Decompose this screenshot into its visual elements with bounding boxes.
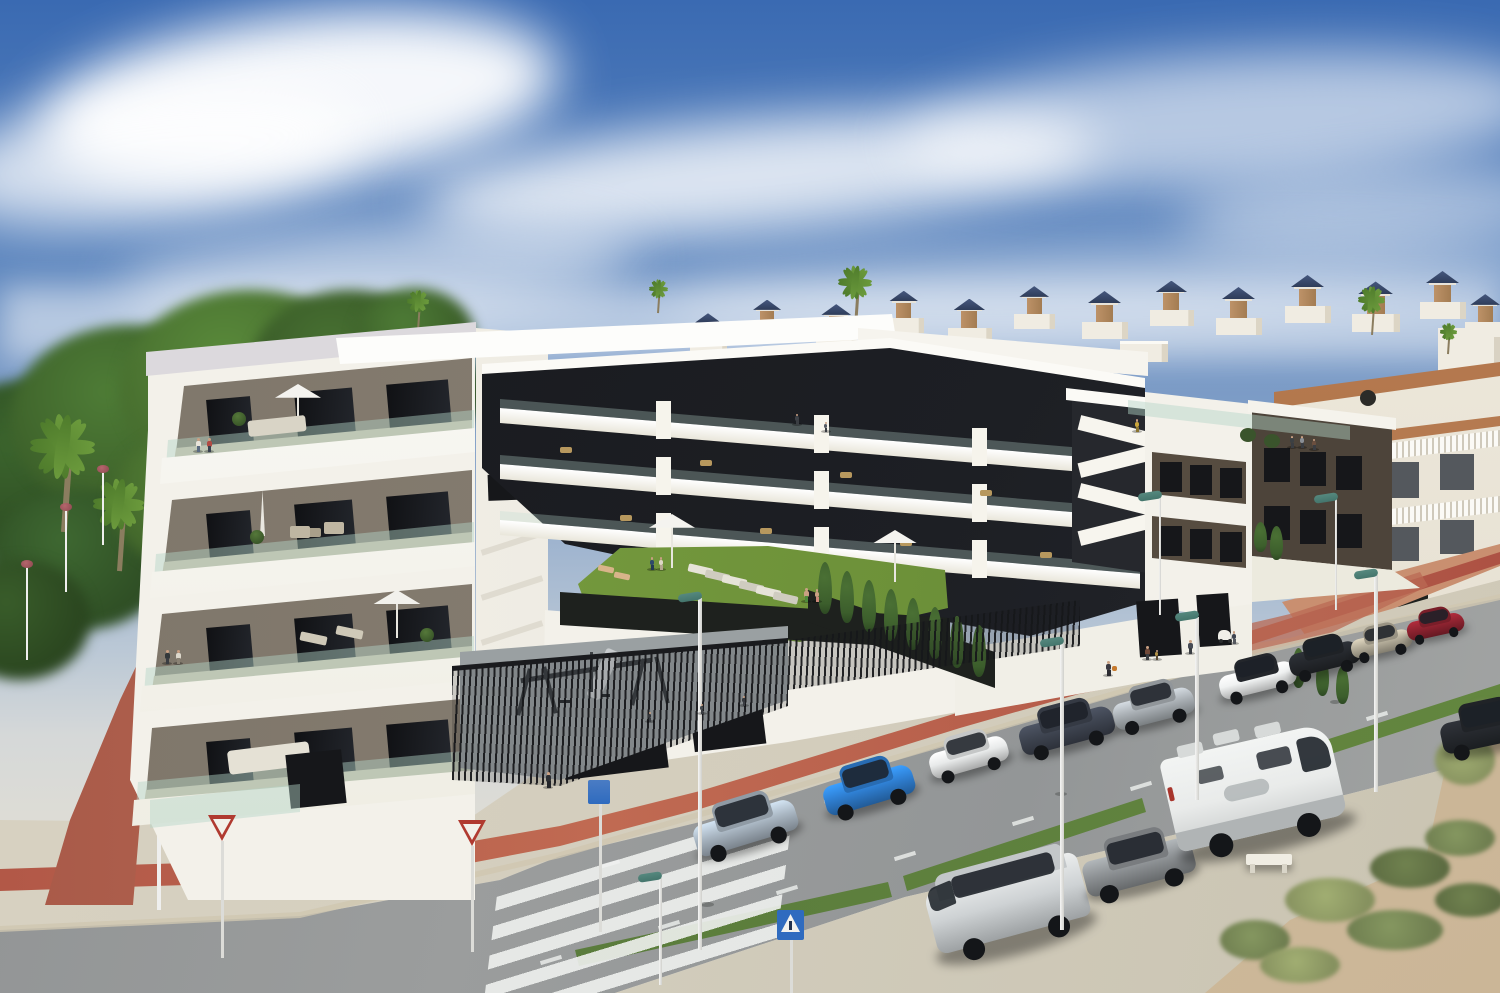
- villa: [1285, 306, 1331, 323]
- right-wing-window: [1190, 465, 1212, 495]
- terrace-plant: [420, 628, 434, 642]
- info-sign-blue: [588, 780, 610, 804]
- villa-tower: [1027, 297, 1042, 314]
- balcony-furniture: [840, 472, 852, 478]
- person-legs: [177, 658, 181, 664]
- person: [206, 438, 213, 452]
- person: [164, 650, 171, 664]
- villa-tower: [1478, 305, 1493, 322]
- balcony-jog: [972, 428, 987, 466]
- person: [1289, 436, 1296, 448]
- person: [803, 588, 810, 602]
- balcony-furniture: [700, 460, 712, 466]
- sign-pole: [790, 940, 793, 993]
- villa: [1420, 302, 1466, 319]
- balcony-furniture: [1040, 552, 1052, 558]
- right-wing-window: [1160, 526, 1182, 556]
- balcony-jog: [656, 457, 671, 495]
- street-lamp-pole: [1374, 575, 1378, 792]
- person: [647, 712, 654, 722]
- person-legs: [1156, 656, 1159, 660]
- street-lamp-pole: [1335, 499, 1338, 610]
- right-wing-window: [1160, 462, 1182, 492]
- person: [1231, 631, 1238, 644]
- person: [175, 650, 182, 664]
- far-right-window: [1336, 514, 1362, 548]
- cypress-tree: [1270, 526, 1283, 560]
- person-legs: [651, 565, 655, 570]
- person: [823, 422, 830, 432]
- person-legs: [1313, 445, 1316, 450]
- person: [649, 557, 656, 570]
- person: [658, 557, 665, 570]
- person: [794, 414, 801, 425]
- person-legs: [825, 428, 828, 432]
- street-lamp-pole: [1060, 643, 1064, 930]
- villa: [1352, 314, 1400, 332]
- balcony-furniture: [620, 515, 632, 521]
- person-legs: [1233, 639, 1237, 644]
- person-legs: [1301, 443, 1304, 448]
- person: [1105, 661, 1112, 676]
- promenade-lamp-head: [97, 465, 109, 473]
- scrub-vegetation: [1370, 848, 1450, 888]
- bench-leg: [1282, 864, 1287, 873]
- right-wing-window: [1220, 532, 1242, 562]
- promenade-lamp-pole: [65, 508, 68, 592]
- person-legs: [649, 718, 652, 722]
- balcony-jog: [814, 471, 829, 509]
- person-legs: [1189, 648, 1193, 654]
- umbrella-pole: [671, 522, 673, 568]
- person: [699, 704, 706, 714]
- terrace-chair: [324, 522, 344, 534]
- person: [1134, 419, 1141, 432]
- scrub-vegetation: [1435, 883, 1500, 917]
- person-legs: [1291, 443, 1294, 448]
- villa-tower: [961, 310, 977, 328]
- person: [1311, 439, 1318, 450]
- rooftop-plant: [1264, 434, 1280, 448]
- person: [814, 589, 821, 602]
- rooftop-plant: [1240, 428, 1256, 442]
- umbrella-pole: [894, 538, 896, 582]
- person-legs: [547, 781, 551, 788]
- sign-pole: [221, 841, 224, 958]
- person-legs: [796, 420, 799, 425]
- right-wing-window: [1220, 468, 1242, 498]
- balcony-jog: [814, 415, 829, 453]
- terrace-plant: [232, 412, 246, 426]
- person-legs: [805, 596, 809, 602]
- person-legs: [1146, 654, 1150, 660]
- right-wing-window: [1190, 529, 1212, 559]
- villa: [1465, 322, 1500, 337]
- scrub-vegetation: [1347, 910, 1443, 950]
- villa-tower: [1230, 299, 1247, 318]
- villa: [1216, 318, 1262, 335]
- far-right-window: [1264, 448, 1290, 482]
- street-lamp-pole: [1195, 617, 1199, 800]
- sign-pole: [599, 802, 602, 932]
- manhole: [700, 902, 714, 907]
- villa-parapet: [1120, 341, 1168, 344]
- cypress-tree: [1254, 522, 1267, 552]
- balcony-furniture: [760, 528, 772, 534]
- scrub-vegetation: [1260, 947, 1340, 983]
- person-legs: [1136, 427, 1140, 432]
- architectural-render-scene: [0, 0, 1500, 993]
- sign-pole: [471, 846, 474, 952]
- terrace-chair: [290, 526, 310, 538]
- person-legs: [660, 565, 664, 570]
- scrub-vegetation: [1425, 820, 1495, 856]
- handbag: [1112, 666, 1117, 671]
- villa-tower: [1163, 292, 1179, 310]
- villa-tower: [1096, 303, 1113, 322]
- person-legs: [166, 658, 170, 664]
- neighbor-round-window: [1360, 390, 1376, 406]
- promenade-lamp-head: [21, 560, 33, 568]
- villa: [1150, 310, 1194, 326]
- villa-tower: [1434, 283, 1451, 302]
- person-legs: [197, 446, 201, 452]
- person: [195, 438, 202, 452]
- crossing-sign-figure: [789, 921, 792, 930]
- person-legs: [208, 446, 212, 452]
- promenade-lamp-head: [60, 503, 72, 511]
- villa: [1014, 314, 1055, 329]
- stroller-wheel: [1228, 639, 1232, 643]
- balcony-furniture: [980, 490, 992, 496]
- person-legs: [743, 702, 746, 706]
- balcony-furniture: [560, 447, 572, 453]
- street-lamp-pole: [698, 598, 702, 950]
- person: [1187, 640, 1194, 654]
- person: [545, 772, 552, 788]
- promenade-lamp-pole: [102, 470, 105, 545]
- street-lamp-pole: [659, 878, 662, 985]
- villa: [1082, 322, 1128, 339]
- far-right-window: [1300, 452, 1326, 486]
- balcony-jog: [656, 401, 671, 439]
- promenade-lamp-pole: [26, 565, 29, 660]
- far-right-window: [1300, 510, 1326, 544]
- person: [1154, 650, 1161, 660]
- neighbor-window: [1440, 520, 1474, 554]
- person-legs: [1107, 670, 1111, 676]
- villa-tower: [896, 301, 911, 318]
- person: [1299, 436, 1306, 448]
- person-legs: [816, 597, 820, 602]
- stroller-wheel: [1219, 639, 1223, 643]
- terrace-plant: [250, 530, 264, 544]
- street-lamp-pole: [1159, 497, 1162, 615]
- person: [1144, 646, 1151, 660]
- bench-leg: [1250, 864, 1255, 873]
- person: [741, 696, 748, 706]
- person-legs: [701, 710, 704, 714]
- far-right-window: [1336, 456, 1362, 490]
- villa-tower: [1299, 287, 1316, 306]
- neighbor-window: [1440, 454, 1474, 490]
- balcony-jog: [972, 540, 987, 578]
